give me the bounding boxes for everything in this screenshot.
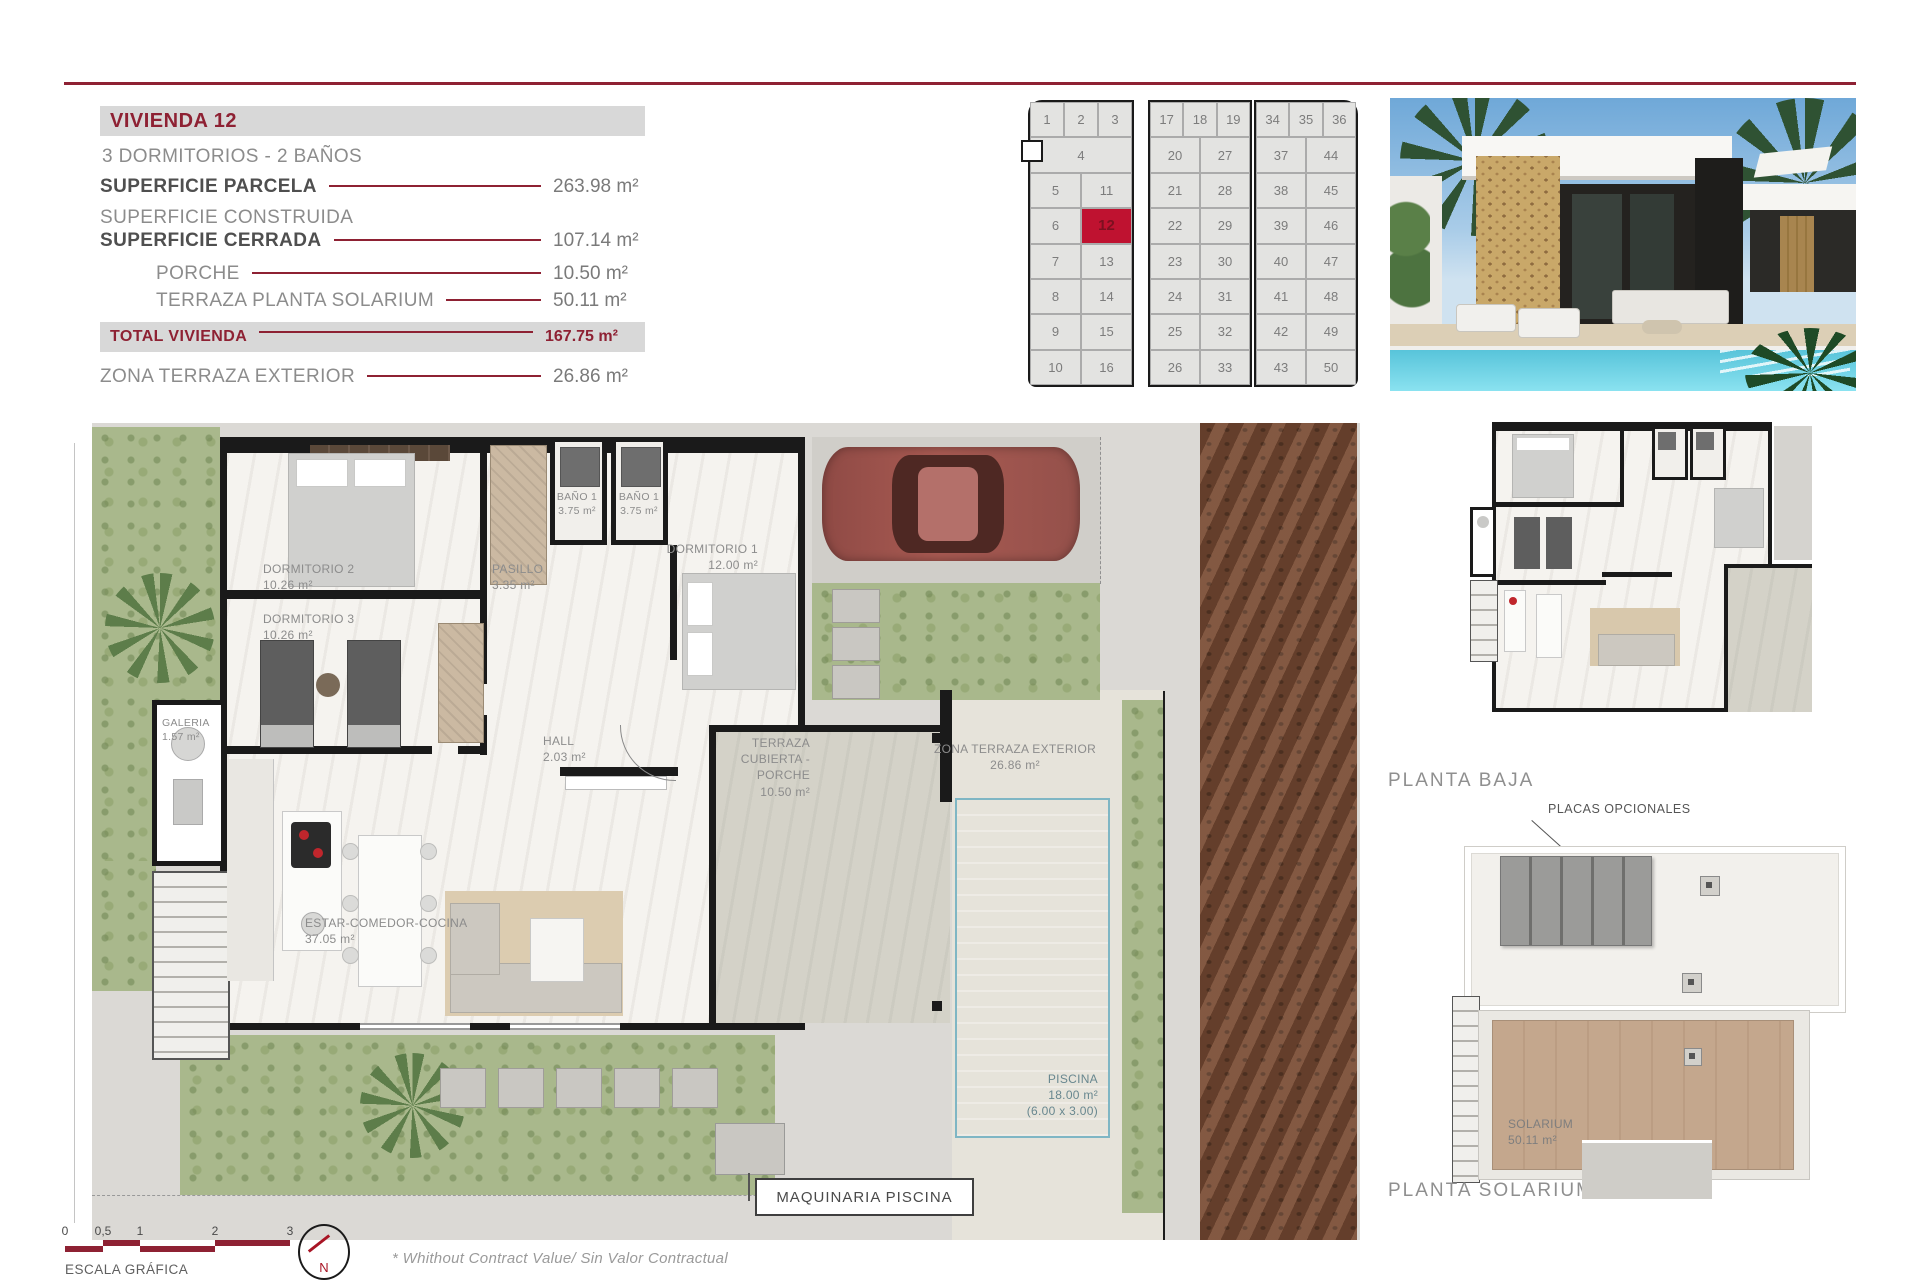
mini-kitchen-island: [1504, 590, 1526, 652]
room-label-porche: TERRAZA CUBIERTA -PORCHE 10.50 m²: [712, 735, 810, 800]
room-area: 3.75 m²: [558, 505, 596, 517]
room-label-estar: ESTAR-COMEDOR-COCINA 37.05 m²: [305, 915, 467, 947]
planta-baja-label: PLANTA BAJA: [1388, 770, 1534, 792]
plot-cell-21: 21: [1150, 173, 1200, 208]
stepping-stone: [614, 1068, 660, 1108]
spec-subtitle: 3 DORMITORIOS - 2 BAÑOS: [102, 146, 362, 168]
mini-dining-table: [1536, 594, 1562, 658]
top-rule: [64, 82, 1856, 85]
plot-row: 3845: [1256, 173, 1356, 208]
plot-cell-25: 25: [1150, 314, 1200, 349]
spec-row-porche: PORCHE 10.50 m²: [100, 263, 645, 285]
stepping-stone: [556, 1068, 602, 1108]
placas-opcionales-label: PLACAS OPCIONALES: [1548, 802, 1691, 816]
plot-row: 2128: [1150, 173, 1250, 208]
spec-value: 263.98 m²: [553, 176, 645, 198]
plot-cell-47: 47: [1306, 244, 1356, 279]
plot-cell-3: 3: [1098, 102, 1132, 137]
plot-cell-2: 2: [1064, 102, 1098, 137]
garden-bottom: [180, 1035, 775, 1195]
room-name: BAÑO 1: [557, 491, 597, 503]
spec-label: ZONA TERRAZA EXTERIOR: [100, 366, 355, 388]
plot-cell-15: 15: [1081, 314, 1132, 349]
roof-vent: [1682, 973, 1702, 993]
pillow: [687, 632, 713, 676]
plot-block-1: 12345116127138149151016: [1028, 100, 1134, 387]
plot-cell-46: 46: [1306, 208, 1356, 243]
garden-small: [92, 861, 156, 991]
total-value: 167.75 m²: [545, 328, 637, 346]
plot-cell-14: 14: [1081, 279, 1132, 314]
stepping-stone: [832, 589, 880, 623]
photo-stone-wall: [1476, 156, 1560, 326]
plot-cell-45: 45: [1306, 173, 1356, 208]
mini-pillow: [1517, 438, 1569, 450]
planta-baja-plan: [1452, 422, 1812, 760]
chair: [342, 947, 359, 964]
room-area: 12.00 m²: [708, 558, 758, 572]
plot-cell-32: 32: [1200, 314, 1250, 349]
spec-label: SUPERFICIE CERRADA: [100, 230, 322, 252]
mini-shower: [1658, 432, 1676, 450]
label-text: MAQUINARIA PISCINA: [776, 1189, 952, 1206]
plot-cell-23: 23: [1150, 244, 1200, 279]
scale-tick: 2: [212, 1224, 219, 1238]
plot-cell-13: 13: [1081, 244, 1132, 279]
porch-column: [932, 1001, 942, 1011]
room-area: 2.03 m²: [543, 750, 586, 764]
leader-line: [329, 185, 541, 187]
leader-line: [446, 299, 541, 301]
plot-row: 4047: [1256, 244, 1356, 279]
coffee-table: [530, 918, 584, 982]
plot-row: 713: [1030, 244, 1132, 279]
room-name: BAÑO 1: [619, 491, 659, 503]
room-name: SOLARIUM: [1508, 1117, 1573, 1131]
room-label-galeria: GALERIA 1.57 m²: [162, 717, 210, 744]
plot-row: 171819: [1150, 102, 1250, 137]
mini-porch: [1724, 564, 1812, 712]
plot-row: 4148: [1256, 279, 1356, 314]
single-bed: [347, 640, 401, 748]
mini-washer: [1477, 516, 1489, 528]
room-area: 1.57 m²: [162, 731, 200, 743]
north-arrow: N: [298, 1224, 350, 1280]
roof-vent: [1700, 876, 1720, 896]
plot-row: 3744: [1256, 137, 1356, 172]
photo-lounger: [1518, 308, 1580, 338]
spec-value: 26.86 m²: [553, 366, 645, 388]
pool-dimensions: (6.00 x 3.00): [1027, 1104, 1098, 1118]
leader-line: [367, 375, 541, 377]
room-area: 10.50 m²: [760, 785, 810, 799]
plot-cell-10: 10: [1030, 350, 1081, 385]
palm-tree: [105, 573, 215, 683]
mini-bed: [1714, 488, 1764, 548]
plot-cell-33: 33: [1200, 350, 1250, 385]
chair: [420, 843, 437, 860]
pool-label: PISCINA 18.00 m² (6.00 x 3.00): [990, 1071, 1098, 1120]
plot-cell-22: 22: [1150, 208, 1200, 243]
page-title: VIVIENDA 12: [110, 110, 237, 133]
rust-path: [1200, 423, 1357, 1240]
room-name: ZONA TERRAZA EXTERIOR: [934, 742, 1096, 756]
spec-row-parcela: SUPERFICIE PARCELA 263.98 m²: [100, 176, 645, 198]
page: VIVIENDA 12 3 DORMITORIOS - 2 BAÑOS SUPE…: [0, 0, 1920, 1280]
bed-foot: [348, 725, 400, 747]
plot-cell-43: 43: [1256, 350, 1306, 385]
vent-dot: [1688, 979, 1694, 985]
spec-value: 107.14 m²: [553, 230, 645, 252]
mini-wall: [1496, 502, 1624, 507]
room-area: 10.26 m²: [263, 628, 313, 642]
leader-line: [334, 239, 542, 241]
mini-shower: [1696, 432, 1714, 450]
scale-tick: 3: [287, 1224, 294, 1238]
mini-stairs: [1470, 580, 1498, 662]
plot-row: 2330: [1150, 244, 1250, 279]
stepping-stone: [832, 627, 880, 661]
room-name: DORMITORIO 3: [263, 612, 354, 626]
villa-photo: [1390, 98, 1856, 391]
plot-cell-20: 20: [1150, 137, 1200, 172]
room-label-dormitorio-3: DORMITORIO 3 10.26 m²: [263, 611, 354, 643]
pillow: [296, 459, 348, 487]
plot-row: 1016: [1030, 350, 1132, 385]
plot-cell-9: 9: [1030, 314, 1081, 349]
plot-row: 4350: [1256, 350, 1356, 385]
tv-console: [565, 776, 667, 790]
vent-dot: [1689, 1053, 1695, 1059]
plot-cell-38: 38: [1256, 173, 1306, 208]
room-label-hall: HALL 2.03 m²: [543, 733, 586, 765]
chair: [420, 947, 437, 964]
mini-galeria: [1470, 507, 1496, 577]
plot-cell-5: 5: [1030, 173, 1081, 208]
appliance: [173, 779, 203, 825]
shower: [560, 447, 600, 487]
scale-segment: [103, 1240, 140, 1246]
mini-bed: [1514, 517, 1540, 569]
chair: [342, 895, 359, 912]
plot-row: 511: [1030, 173, 1132, 208]
hob: [291, 822, 331, 868]
plot-row: 4: [1030, 137, 1132, 172]
pool-machinery-label: MAQUINARIA PISCINA: [755, 1178, 974, 1216]
plot-cell-1: 1: [1030, 102, 1064, 137]
solar-panels: [1500, 856, 1652, 946]
mini-wall: [1620, 426, 1624, 504]
spec-row-zona-exterior: ZONA TERRAZA EXTERIOR 26.86 m²: [100, 366, 645, 388]
plot-row: 3946: [1256, 208, 1356, 243]
total-label: TOTAL VIVIENDA: [110, 328, 247, 346]
spec-row-construida: SUPERFICIE CONSTRUIDA: [100, 207, 645, 229]
vent-dot: [1706, 882, 1712, 888]
plot-cell-44: 44: [1306, 137, 1356, 172]
plot-cell-42: 42: [1256, 314, 1306, 349]
room-area: 26.86 m²: [990, 758, 1040, 772]
plot-cell-12: 12: [1081, 208, 1132, 243]
scale-segment: [65, 1246, 103, 1252]
mini-bed: [1546, 517, 1572, 569]
spec-label: TERRAZA PLANTA SOLARIUM: [156, 290, 434, 312]
room-name: PISCINA: [1048, 1072, 1098, 1086]
room-area: 18.00 m²: [1048, 1088, 1098, 1102]
disclaimer: * Whithout Contract Value/ Sin Valor Con…: [392, 1250, 728, 1267]
chair: [420, 895, 437, 912]
leader-line: [252, 272, 541, 274]
photo-lounger: [1456, 304, 1516, 332]
plot-cell-4: 4: [1030, 137, 1132, 172]
plot-cell-29: 29: [1200, 208, 1250, 243]
bed-foot: [261, 725, 313, 747]
plot-cell-40: 40: [1256, 244, 1306, 279]
mini-sofa: [1598, 634, 1675, 666]
leader-line: [259, 331, 533, 333]
mini-bathroom: [1690, 426, 1726, 480]
scale-tick: 0,5: [95, 1224, 112, 1238]
spec-row-cerrada: SUPERFICIE CERRADA 107.14 m²: [100, 230, 645, 252]
plot-cell-16: 16: [1081, 350, 1132, 385]
room-area: 50.11 m²: [1508, 1133, 1557, 1147]
window: [510, 1023, 620, 1030]
scale-segment: [140, 1246, 215, 1252]
plot-cell-6: 6: [1030, 208, 1081, 243]
plot-cell-34: 34: [1256, 102, 1289, 137]
photo-table: [1642, 320, 1682, 334]
room-name: HALL: [543, 734, 574, 748]
planta-solarium-plan: SOLARIUM 50.11 m²: [1452, 838, 1852, 1196]
room-name: GALERIA: [162, 717, 210, 729]
room-label-dormitorio-2: DORMITORIO 2 10.26 m²: [263, 561, 354, 593]
room-area: 3.35 m²: [492, 578, 535, 592]
double-bed: [682, 573, 796, 690]
plot-row: 4249: [1256, 314, 1356, 349]
spec-value: 10.50 m²: [553, 263, 645, 285]
plot-cell-24: 24: [1150, 279, 1200, 314]
plot-cell-17: 17: [1150, 102, 1183, 137]
stepping-stone: [672, 1068, 718, 1108]
room-name: DORMITORIO 1: [667, 542, 758, 556]
north-letter: N: [300, 1260, 348, 1275]
plot-cell-11: 11: [1081, 173, 1132, 208]
plot-cell-8: 8: [1030, 279, 1081, 314]
plot-cell-39: 39: [1256, 208, 1306, 243]
plot-row: 2532: [1150, 314, 1250, 349]
deck-vent: [1684, 1048, 1702, 1066]
stairs: [152, 871, 230, 1060]
plot-cell-30: 30: [1200, 244, 1250, 279]
pool-machinery-pad: [715, 1123, 785, 1175]
wardrobe: [438, 623, 484, 743]
plot-row: 915: [1030, 314, 1132, 349]
kitchen-counter: [227, 759, 274, 981]
photo-roof-right: [1743, 184, 1856, 210]
room-name: TERRAZA CUBIERTA -PORCHE: [741, 736, 810, 782]
pillow: [687, 582, 713, 626]
utility-box: [1021, 140, 1043, 162]
wall-segment: [480, 437, 487, 590]
single-bed: [260, 640, 314, 748]
dimension-line: [74, 443, 75, 1223]
scale-label: ESCALA GRÁFICA: [65, 1262, 188, 1277]
spec-label: SUPERFICIE PARCELA: [100, 176, 317, 198]
plot-block-3: 3435363744384539464047414842494350: [1254, 100, 1358, 387]
window: [360, 1023, 470, 1030]
room-label-bano-1: BAÑO 1 3.75 m²: [552, 491, 602, 518]
room-label-bano-2: BAÑO 1 3.75 m²: [614, 491, 664, 518]
plot-cell-36: 36: [1323, 102, 1356, 137]
plot-row: 2229: [1150, 208, 1250, 243]
plot-cell-50: 50: [1306, 350, 1356, 385]
scale-tick: 1: [137, 1224, 144, 1238]
spec-label: PORCHE: [156, 263, 240, 285]
mini-hob: [1509, 597, 1517, 605]
photo-vines: [1390, 193, 1430, 313]
plot-row: 2027: [1150, 137, 1250, 172]
site-plan-key: 12345116127138149151016 1718192027212822…: [1028, 100, 1358, 387]
room-name: DORMITORIO 2: [263, 562, 354, 576]
plot-row: 123: [1030, 102, 1132, 137]
north-needle: [308, 1234, 330, 1252]
car-roof: [918, 467, 978, 541]
plot-cell-28: 28: [1200, 173, 1250, 208]
leader-line: [748, 1173, 750, 1201]
plot-cell-35: 35: [1289, 102, 1322, 137]
plot-cell-48: 48: [1306, 279, 1356, 314]
planta-solarium-label: PLANTA SOLARIUM: [1388, 1180, 1594, 1202]
plot-row: 2431: [1150, 279, 1250, 314]
plot-cell-26: 26: [1150, 350, 1200, 385]
stepping-stone: [440, 1068, 486, 1108]
plot-row: 343536: [1256, 102, 1356, 137]
spec-title-bar: VIVIENDA 12: [100, 106, 645, 136]
room-label-zona-terraza: ZONA TERRAZA EXTERIOR 26.86 m²: [920, 741, 1110, 773]
spec-label: SUPERFICIE CONSTRUIDA: [100, 207, 353, 229]
hob-burner: [299, 830, 309, 840]
room-area: 37.05 m²: [305, 932, 355, 946]
hedge: [1122, 700, 1163, 1213]
plot-cell-37: 37: [1256, 137, 1306, 172]
solarium-label: SOLARIUM 50.11 m²: [1508, 1116, 1573, 1148]
mini-media-wall: [1602, 572, 1672, 577]
photo-sofa: [1612, 290, 1729, 324]
plot-cell-27: 27: [1200, 137, 1250, 172]
plan-margin: [60, 423, 92, 1240]
scale-tick: 0: [62, 1224, 69, 1238]
mini-driveway: [1774, 426, 1812, 560]
room-name: PASILLO: [492, 562, 543, 576]
pillow: [354, 459, 406, 487]
concrete-pad: [1582, 1140, 1712, 1199]
dining-table: [358, 835, 422, 987]
plot-block-2: 1718192027212822292330243125322633: [1148, 100, 1252, 387]
photo-wood-door: [1780, 216, 1814, 292]
main-floor-plan: ZONA TERRAZA EXTERIOR 26.86 m² PISCINA 1…: [60, 423, 1360, 1240]
stepping-stone: [498, 1068, 544, 1108]
spec-panel: VIVIENDA 12 3 DORMITORIOS - 2 BAÑOS SUPE…: [100, 106, 645, 406]
plot-cell-7: 7: [1030, 244, 1081, 279]
plot-cell-31: 31: [1200, 279, 1250, 314]
room-label-pasillo: PASILLO 3.35 m²: [492, 561, 543, 593]
nightstand: [316, 673, 340, 697]
room-area: 3.75 m²: [620, 505, 658, 517]
hob-burner: [313, 848, 323, 858]
plot-cell-49: 49: [1306, 314, 1356, 349]
room-name: ESTAR-COMEDOR-COCINA: [305, 916, 467, 930]
plot-cell-19: 19: [1217, 102, 1250, 137]
mini-bed: [1512, 434, 1574, 498]
plot-row: 2633: [1150, 350, 1250, 385]
room-label-dormitorio-1: DORMITORIO 1 12.00 m²: [660, 541, 758, 573]
spec-row-terraza-solarium: TERRAZA PLANTA SOLARIUM 50.11 m²: [100, 290, 645, 312]
plot-cell-41: 41: [1256, 279, 1306, 314]
chair: [342, 843, 359, 860]
room-area: 10.26 m²: [263, 578, 313, 592]
solarium-stairs: [1452, 996, 1480, 1183]
plot-row: 612: [1030, 208, 1132, 243]
spec-total-bar: TOTAL VIVIENDA 167.75 m²: [100, 322, 645, 352]
stepping-stone: [832, 665, 880, 699]
mini-bathroom: [1652, 426, 1688, 480]
plot-row: 814: [1030, 279, 1132, 314]
wall-segment: [227, 746, 432, 754]
mini-wall: [1496, 580, 1606, 585]
plot-cell-18: 18: [1183, 102, 1216, 137]
spec-value: 50.11 m²: [553, 290, 645, 312]
shower: [621, 447, 661, 487]
scale-segment: [215, 1240, 290, 1246]
